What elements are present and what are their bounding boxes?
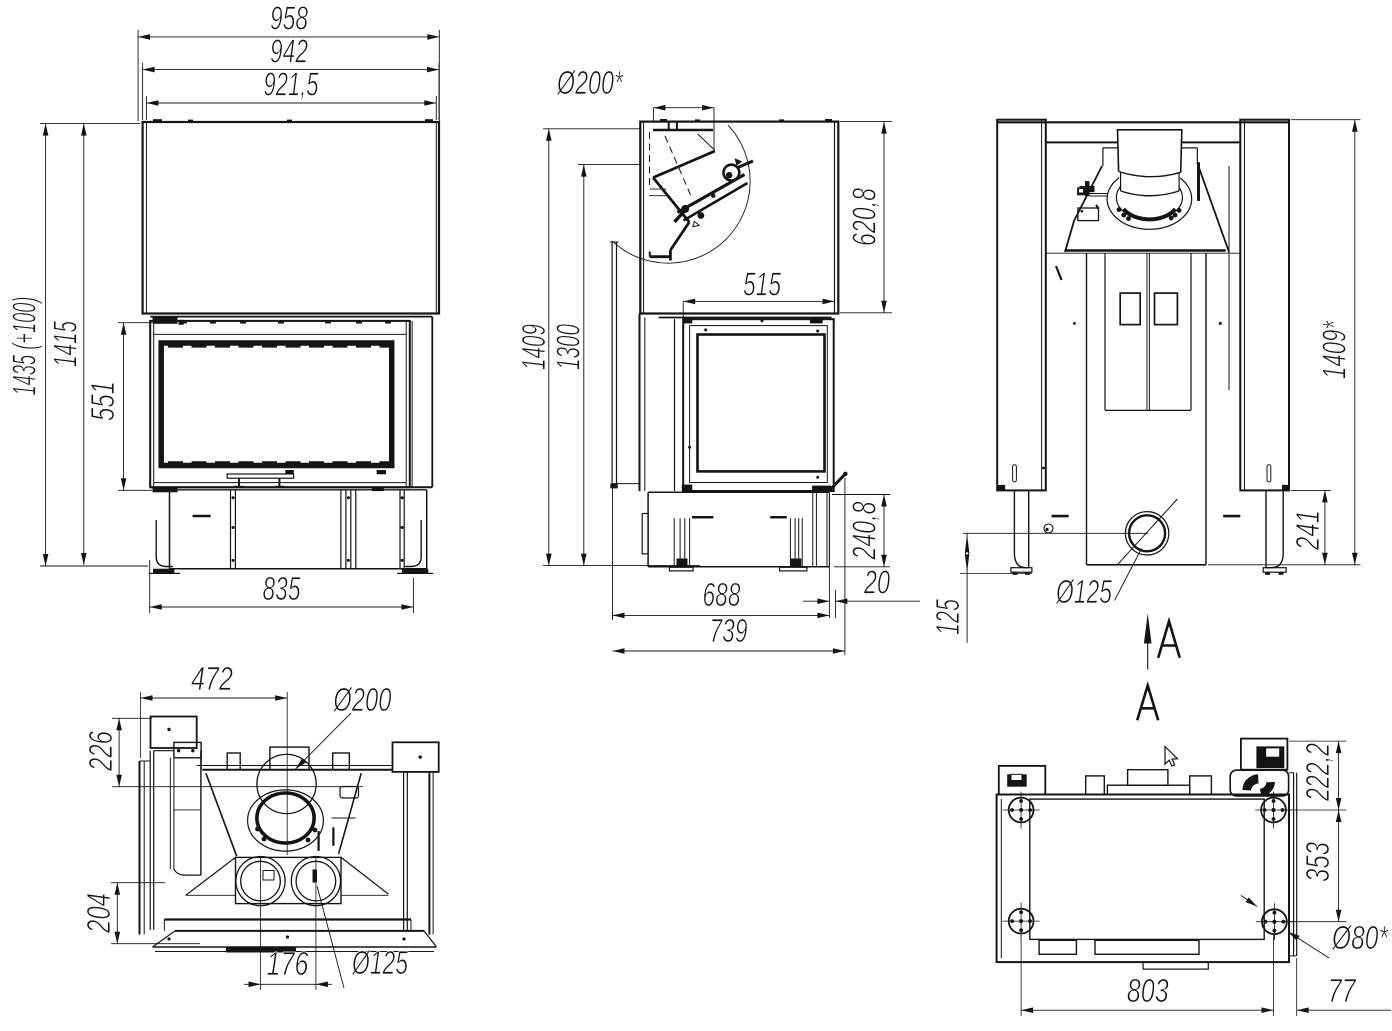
- svg-text:20: 20: [863, 564, 890, 601]
- svg-text:620,8: 620,8: [846, 188, 883, 246]
- svg-text:1435 (+100): 1435 (+100): [6, 297, 43, 396]
- svg-text:835: 835: [263, 570, 301, 607]
- svg-text:1415: 1415: [47, 321, 84, 367]
- svg-text:77: 77: [1328, 972, 1357, 1009]
- svg-text:472: 472: [191, 660, 233, 697]
- svg-text:551: 551: [84, 381, 121, 421]
- svg-text:226: 226: [82, 731, 119, 772]
- svg-text:Ø125: Ø125: [351, 944, 408, 981]
- svg-text:125: 125: [929, 599, 966, 635]
- svg-text:942: 942: [270, 33, 308, 70]
- svg-text:241: 241: [1289, 510, 1326, 551]
- svg-text:1409: 1409: [515, 324, 552, 370]
- svg-text:240,8: 240,8: [846, 501, 883, 560]
- svg-text:Ø200*: Ø200*: [556, 64, 624, 101]
- svg-text:1300: 1300: [550, 324, 587, 370]
- svg-text:688: 688: [703, 576, 741, 613]
- svg-text:1409*: 1409*: [1316, 320, 1353, 379]
- svg-text:222,2: 222,2: [1299, 743, 1336, 802]
- svg-text:Ø80*: Ø80*: [1331, 919, 1389, 956]
- svg-text:958: 958: [270, 0, 308, 37]
- svg-text:921,5: 921,5: [264, 66, 319, 103]
- svg-text:204: 204: [80, 893, 117, 934]
- svg-text:353: 353: [1299, 842, 1336, 882]
- svg-text:Ø200: Ø200: [333, 681, 392, 718]
- svg-text:739: 739: [710, 612, 748, 649]
- svg-text:176: 176: [267, 945, 309, 982]
- svg-text:Ø125: Ø125: [1055, 573, 1112, 610]
- svg-text:515: 515: [743, 266, 781, 303]
- svg-text:803: 803: [1127, 972, 1169, 1009]
